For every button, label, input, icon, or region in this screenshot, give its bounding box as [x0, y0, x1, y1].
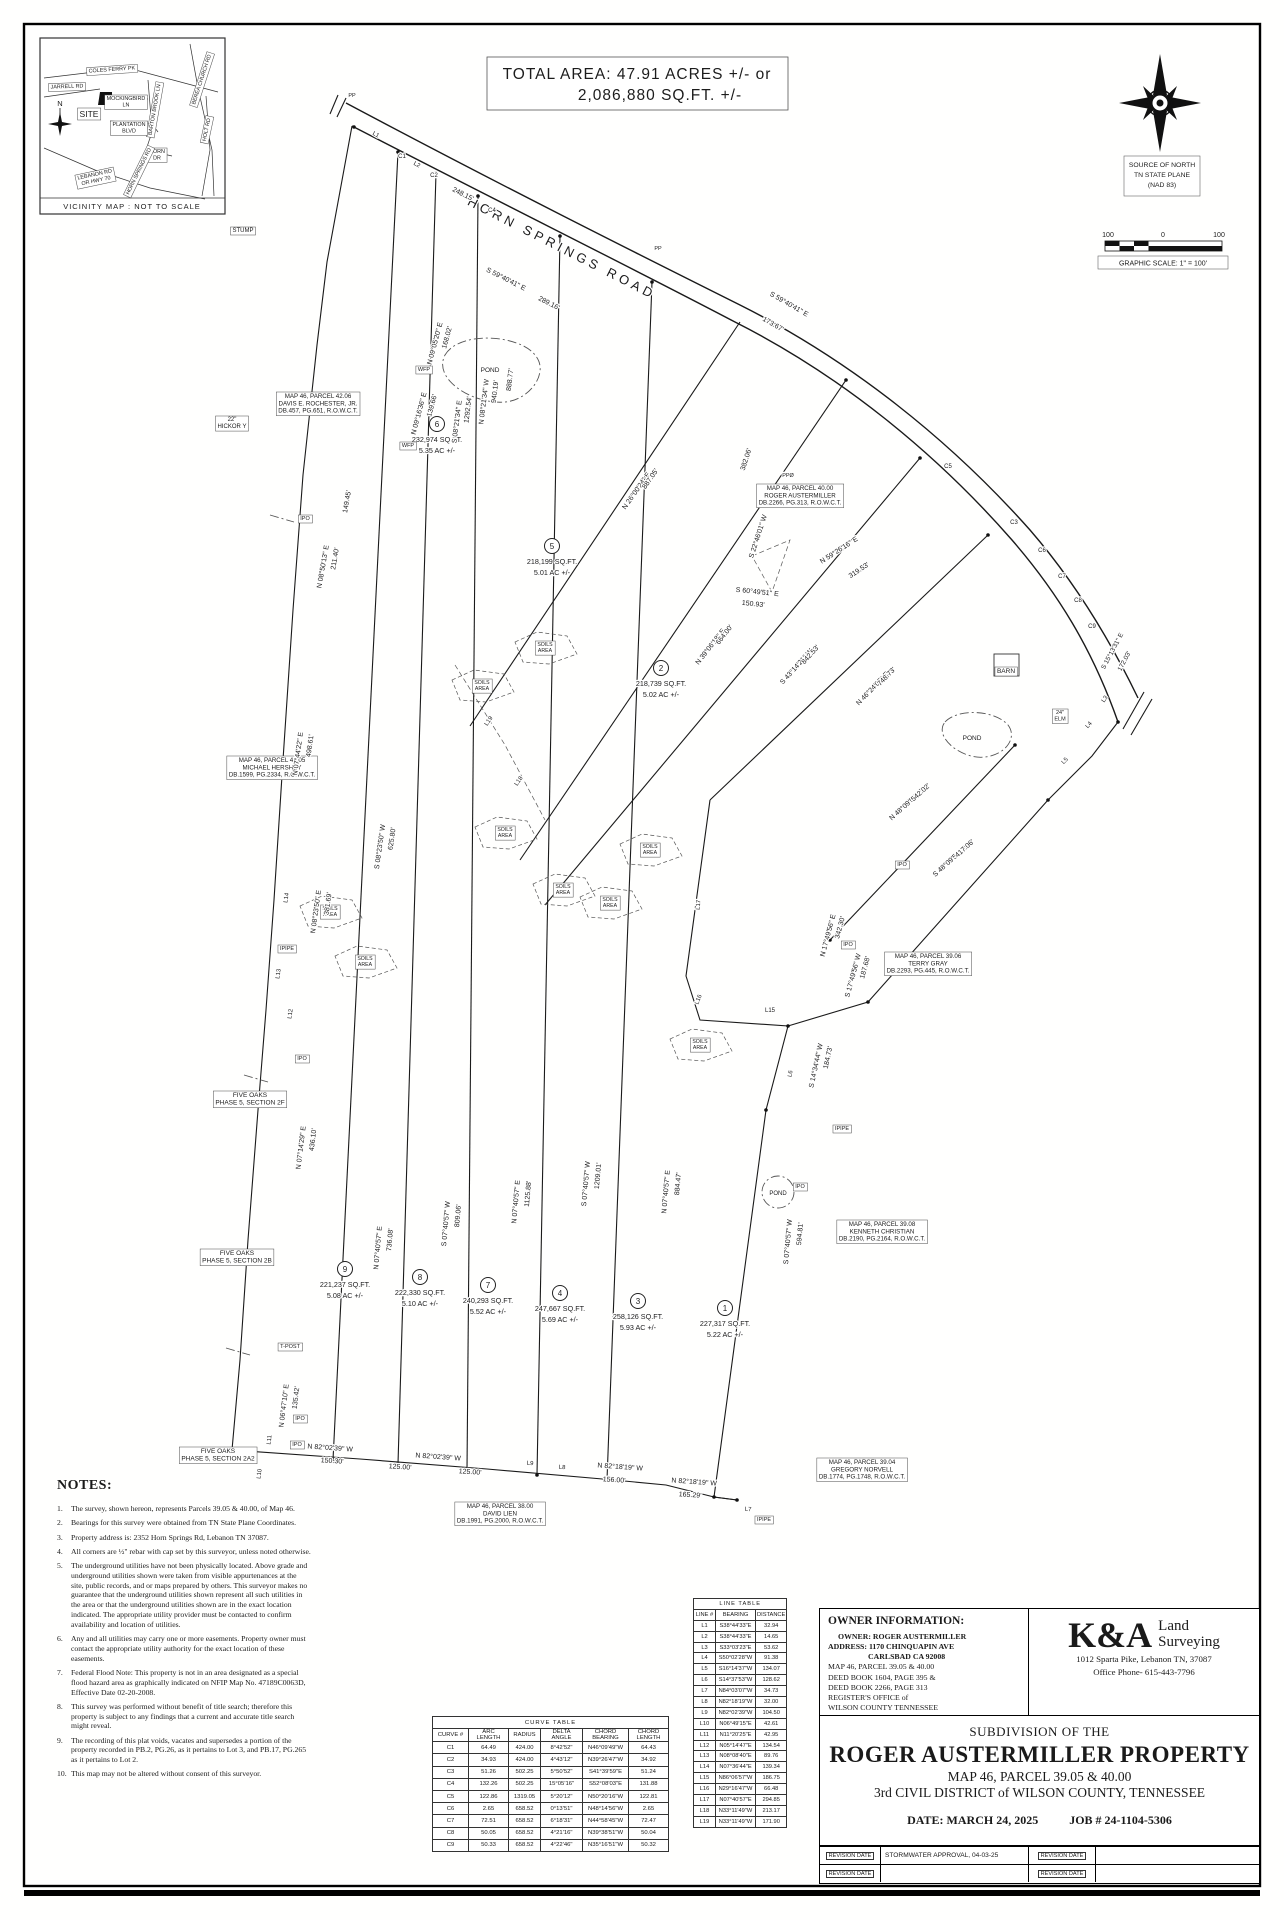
ponds — [443, 338, 1012, 1208]
owner-line: OWNER: ROGER AUSTERMILLER — [838, 1632, 1020, 1642]
plat-label: S 59°40'41" E — [485, 266, 527, 293]
lot-acreage: 5.02 AC +/- — [643, 690, 680, 699]
vicinity-map: COLES FERRY PKJARRELL RDBEREA CHURCH RDM… — [40, 38, 225, 214]
plat-label: L14 — [283, 892, 290, 903]
plat-label: N 06°47'10" E — [277, 1383, 290, 1428]
note-item: 8.This survey was performed without bene… — [57, 1702, 311, 1731]
plat-label: C1 — [398, 154, 406, 160]
plat-label: MAP 46, PARCEL 39.04GREGORY NORVELLDB.17… — [819, 1459, 906, 1481]
plat-label: IPIPE — [757, 1517, 771, 1523]
owner-heading: OWNER INFORMATION: — [828, 1615, 1020, 1627]
plat-label: N 09°16'36" E — [410, 391, 429, 435]
table-row: C4132.26502.2515°05'16"S52°08'03"E131.88 — [433, 1778, 669, 1790]
lot-number: 3 — [636, 1297, 641, 1306]
table-header: CHORD LENGTH — [629, 1729, 669, 1742]
lot-8: 8222,330 SQ.FT.5.10 AC +/- — [395, 1270, 445, 1309]
firm-word2: Surveying — [1158, 1635, 1220, 1651]
plat-label: C8 — [1074, 598, 1082, 604]
lot-number: 5 — [550, 542, 555, 551]
plat-label: 1292.54' — [463, 396, 473, 423]
scale-zero: 0 — [1161, 232, 1165, 239]
revision-rows: REVISION DATESTORMWATER APPROVAL, 04-03-… — [820, 1846, 1259, 1882]
note-item: 9.The recording of this plat voids, vaca… — [57, 1736, 311, 1765]
table-row: L8N82°18'19"W32.00 — [694, 1697, 787, 1708]
plat-subtitle: SUBDIVISION OF THE — [820, 1724, 1259, 1740]
plat-label: T-POST — [280, 1344, 301, 1350]
lot-acreage: 5.08 AC +/- — [327, 1291, 364, 1300]
plat-label: 150.93' — [741, 600, 764, 609]
plat-label: L8 — [559, 1465, 567, 1471]
table-row: L12N05°14'47"E134.54 — [694, 1740, 787, 1751]
table-row: L19N33°11'49"W171.90 — [694, 1816, 787, 1827]
plat-label: 940.19' — [491, 380, 501, 403]
lot-1: 1227,317 SQ.FT.5.22 AC +/- — [700, 1301, 750, 1340]
lot-2: 2218,739 SQ.FT.5.02 AC +/- — [636, 661, 686, 700]
lot-sqft: 218,739 SQ.FT. — [636, 679, 686, 688]
plat-label: L1 — [371, 131, 380, 140]
table-row: L13N08°08'40"E89.76 — [694, 1751, 787, 1762]
plat-label: C6 — [1038, 548, 1046, 554]
plat-label: PP — [348, 93, 356, 99]
title-block: OWNER INFORMATION: OWNER: ROGER AUSTERMI… — [819, 1608, 1260, 1884]
revision-date-label-cell: REVISION DATE — [1029, 1864, 1096, 1882]
lot-number: 9 — [343, 1265, 348, 1274]
plat-label: N 82°18'19" W — [597, 1461, 643, 1472]
revision-value-cell — [881, 1864, 1029, 1882]
plat-label: 319.53' — [848, 562, 871, 580]
table-header: LINE # — [694, 1609, 716, 1620]
notes-heading: NOTES: — [57, 1478, 311, 1494]
note-item: 10.This map may not be altered without c… — [57, 1769, 311, 1779]
plat-label: IPO — [292, 1442, 302, 1448]
plat-date: DATE: MARCH 24, 2025 — [907, 1813, 1038, 1827]
plat-label: 884.47' — [674, 1172, 683, 1195]
lot-number: 1 — [723, 1304, 728, 1313]
owner-information: OWNER INFORMATION: OWNER: ROGER AUSTERMI… — [820, 1609, 1029, 1716]
plat-label: N 07°40'57" E — [660, 1169, 672, 1213]
plat-label: 211.40' — [330, 547, 341, 570]
table-header: DISTANCE — [756, 1609, 787, 1620]
table-row: C234.93424.004°43'12"N39°26'47"W34.92 — [433, 1754, 669, 1766]
table-row: L6S14°37'53"W128.62 — [694, 1675, 787, 1686]
plat-label: 125.00' — [459, 1468, 482, 1477]
plat-label: L9 — [527, 1461, 535, 1467]
plat-label: 1209.01' — [594, 1162, 603, 1189]
plat-label: POND — [481, 367, 500, 374]
vicinity-caption: VICINITY MAP : NOT TO SCALE — [63, 202, 201, 211]
owner-line: MAP 46, PARCEL 39.05 & 40.00 — [828, 1662, 1020, 1672]
plat-label: S 08°23'50" W — [373, 823, 387, 869]
lot-number: 8 — [418, 1273, 423, 1282]
lot-sqft: 247,667 SQ.FT. — [535, 1304, 585, 1313]
lot-7: 7240,293 SQ.FT.5.52 AC +/- — [463, 1278, 513, 1317]
north-line2: TN STATE PLANE — [1134, 172, 1190, 179]
surveyor-firm: K&A Land Surveying 1012 Sparta Pike, Leb… — [1029, 1609, 1259, 1716]
revision-date-label-cell: REVISION DATE — [820, 1864, 881, 1882]
plat-label: N 59°26'16" E — [818, 535, 859, 566]
plat-label: N 08°50'13" E — [315, 544, 331, 589]
revision-value-cell — [1096, 1864, 1259, 1882]
owner-line: ADDRESS: 1170 CHINQUAPIN AVE — [828, 1642, 1020, 1652]
lot-number: 7 — [486, 1281, 491, 1290]
plat-label: L5 — [1061, 756, 1070, 765]
plat-label: IPO — [300, 516, 310, 522]
plat-label: 156.00' — [603, 1476, 626, 1485]
total-area-line2: 2,086,880 SQ.FT. +/- — [578, 87, 742, 104]
firm-initials: K&A — [1068, 1619, 1152, 1651]
lot-sqft: 221,237 SQ.FT. — [320, 1280, 370, 1289]
plat-label: POND — [769, 1191, 787, 1197]
table-row: L10N06°49'15"E42.61 — [694, 1718, 787, 1729]
plat-label: C2 — [430, 173, 438, 179]
plat-district: 3rd CIVIL DISTRICT of WILSON COUNTY, TEN… — [820, 1785, 1259, 1801]
plat-label: IPO — [295, 1416, 305, 1422]
north-line1: SOURCE OF NORTH — [1129, 162, 1195, 169]
plat-map-parcel: MAP 46, PARCEL 39.05 & 40.00 — [820, 1769, 1259, 1785]
plat-label: S 59°40'41" E — [768, 290, 810, 319]
table-row: L11N11°20'25"E42.95 — [694, 1729, 787, 1740]
plat-label: N 82°18'19" W — [671, 1476, 717, 1487]
plat-label: IPIPE — [280, 946, 294, 952]
plat-label: N 82°02'39" W — [415, 1451, 461, 1462]
lot-sqft: 258,126 SQ.FT. — [613, 1312, 663, 1321]
soils-area-label: SOILSAREA — [474, 680, 490, 692]
vicinity-label: N — [57, 99, 62, 108]
plat-label: 149.45' — [342, 490, 353, 514]
plat-label: S 60°49'51" E — [735, 586, 779, 599]
table-row: L16N29°16'47"W66.48 — [694, 1784, 787, 1795]
lot-3: 3258,126 SQ.FT.5.93 AC +/- — [613, 1294, 663, 1333]
plat-label: 289.16' — [537, 295, 560, 312]
plat-label: L11 — [266, 1434, 273, 1445]
table-header: DELTA ANGLE — [541, 1729, 583, 1742]
north-line3: (NAD 83) — [1148, 182, 1176, 189]
scale-caption: GRAPHIC SCALE: 1" = 100' — [1119, 261, 1207, 268]
north-source-note: SOURCE OF NORTH TN STATE PLANE (NAD 83) — [1124, 156, 1200, 196]
table-row: L14N07°36'44"E139.34 — [694, 1762, 787, 1773]
plat-label: 139.66' — [426, 394, 439, 418]
plat-label: 135.42' — [292, 1386, 302, 1409]
plat-title: SUBDIVISION OF THE ROGER AUSTERMILLER PR… — [820, 1716, 1259, 1846]
plat-label: 184.73' — [823, 1046, 835, 1070]
revision-date-label-cell: REVISION DATE — [820, 1846, 881, 1864]
table-header: CHORD BEARING — [583, 1729, 629, 1742]
soils-area-label: SOILSAREA — [555, 884, 571, 896]
plat-label: IPO — [897, 862, 907, 868]
plat-label: N 07°40'57" E — [510, 1179, 522, 1223]
soils-area-label: SOILSAREA — [642, 844, 658, 856]
plat-label: C4 — [488, 208, 496, 214]
plat-label: S 07°40'57" W — [440, 1201, 452, 1247]
lot-5: 5218,199 SQ.FT.5.01 AC +/- — [527, 539, 577, 578]
graphic-scale: 100 0 100 GRAPHIC SCALE: 1" = 100' — [1098, 232, 1228, 269]
plat-label: N 07°14'29" E — [294, 1125, 307, 1170]
soils-area-label: SOILSAREA — [602, 897, 618, 909]
scale-right: 100 — [1213, 232, 1225, 239]
plat-label: 1125.88' — [524, 1181, 533, 1208]
plat-label: 542.02' — [910, 783, 932, 803]
lot-acreage: 5.69 AC +/- — [542, 1315, 579, 1324]
vicinity-label: SITE — [80, 109, 99, 119]
plat-label: C3 — [1010, 520, 1018, 526]
plat-label: 809.06' — [454, 1204, 463, 1227]
owner-line: CARLSBAD CA 92008 — [868, 1652, 1020, 1662]
plat-label: 382.06' — [740, 448, 754, 472]
soils-area-label: SOILSAREA — [692, 1039, 708, 1051]
table-row: C5122.861319.055°20'12"N50°20'16"W122.81 — [433, 1790, 669, 1802]
plat-label: IPIPE — [835, 1126, 849, 1132]
curve-table: CURVE TABLECURVE #ARC LENGTHRADIUSDELTA … — [432, 1716, 669, 1852]
table-row: L4S50°02'28"W91.38 — [694, 1653, 787, 1664]
plat-label: IPO — [795, 1184, 805, 1190]
plat-label: 150.30' — [321, 1457, 344, 1466]
lot-acreage: 5.52 AC +/- — [470, 1307, 507, 1316]
plat-label: L13 — [275, 968, 282, 979]
vicinity-label: JARRELL RD — [50, 83, 83, 90]
firm-address: 1012 Sparta Pike, Lebanon TN, 37087 — [1029, 1654, 1259, 1664]
note-item: 2.Bearings for this survey were obtained… — [57, 1518, 311, 1528]
note-item: 4.All corners are ½" rebar with cap set … — [57, 1547, 311, 1557]
plat-label: C7 — [1058, 574, 1066, 580]
firm-word1: Land — [1158, 1619, 1220, 1635]
plat-label: L19 — [484, 715, 495, 727]
lot-sqft: 240,293 SQ.FT. — [463, 1296, 513, 1305]
plat-label: 165.29' — [679, 1491, 702, 1500]
soils-area-label: SOILSAREA — [537, 642, 553, 654]
lot-acreage: 5.35 AC +/- — [419, 446, 456, 455]
note-item: 3.Property address is: 2352 Horn Springs… — [57, 1533, 311, 1543]
table-row: C62.65658.520°13'51"N48°14'56"W2.65 — [433, 1803, 669, 1815]
owner-line: DEED BOOK 2266, PAGE 313 — [828, 1683, 1020, 1693]
table-row: L1S38°44'33"E32.94 — [694, 1620, 787, 1631]
lot-acreage: 5.10 AC +/- — [402, 1299, 439, 1308]
table-row: C351.26502.255°50'52"S41°39'59"E51.24 — [433, 1766, 669, 1778]
note-item: 7.Federal Flood Note: This property is n… — [57, 1668, 311, 1697]
firm-phone: Office Phone- 615-443-7796 — [1029, 1667, 1259, 1677]
revision-value-cell: STORMWATER APPROVAL, 04-03-25 — [881, 1846, 1029, 1864]
owner-line: REGISTER'S OFFICE of — [828, 1693, 1020, 1703]
plat-label: L16 — [695, 993, 704, 1005]
plat-label: PP — [654, 246, 662, 252]
plat-label: S 07°40'57" W — [580, 1161, 592, 1207]
note-item: 1.The survey, shown hereon, represents P… — [57, 1504, 311, 1514]
plat-labels: HORN SPRINGS ROADS 59°40'41" E289.16'S 5… — [179, 93, 1132, 1526]
plat-label: L12 — [287, 1008, 294, 1019]
plat-label: 888.77' — [506, 368, 516, 391]
plat-label: MAP 46, PARCEL 39.08KENNETH CHRISTIANDB.… — [839, 1221, 926, 1243]
lot-sqft: 222,330 SQ.FT. — [395, 1288, 445, 1297]
line-table: LINE TABLELINE #BEARINGDISTANCEL1S38°44'… — [693, 1598, 787, 1828]
plat-label: S 07°40'57" W — [782, 1219, 794, 1265]
plat-label: POND — [963, 735, 982, 742]
lot-sqft: 218,199 SQ.FT. — [527, 557, 577, 566]
plat-name: ROGER AUSTERMILLER PROPERTY — [820, 1742, 1259, 1768]
plat-label: 625.80' — [387, 827, 397, 851]
plat-label: PPØ — [782, 473, 794, 479]
plat-label: MAP 46, PARCEL 42.06DAVIS E. ROCHESTER, … — [278, 393, 358, 415]
table-row: L9N82°02'39"W104.50 — [694, 1707, 787, 1718]
plat-label: WFP — [402, 443, 415, 449]
plat-label: L4 — [1085, 720, 1094, 729]
scale-left: 100 — [1102, 232, 1114, 239]
table-row: L17N07°40'57"E294.85 — [694, 1795, 787, 1806]
table-row: C164.49424.008°42'52"N46°09'49"W64.43 — [433, 1742, 669, 1754]
plat-label: WFP — [418, 367, 431, 373]
total-area-line1: TOTAL AREA: 47.91 ACRES +/- or — [503, 66, 772, 83]
plat-label: 248.15' — [451, 186, 474, 203]
note-item: 5.The underground utilities have not bee… — [57, 1561, 311, 1629]
lot-markers: 1227,317 SQ.FT.5.22 AC +/-2218,739 SQ.FT… — [320, 417, 750, 1340]
plat-label: L18 — [514, 775, 525, 787]
lot-4: 4247,667 SQ.FT.5.69 AC +/- — [535, 1286, 585, 1325]
table-header: RADIUS — [509, 1729, 541, 1742]
notes-block: NOTES: 1.The survey, shown hereon, repre… — [57, 1478, 311, 1784]
table-row: L2S38°44'33"E14.65 — [694, 1631, 787, 1642]
plat-label: N 82°02'39" W — [307, 1442, 353, 1453]
table-header: ARC LENGTH — [469, 1729, 509, 1742]
plat-label: 168.02' — [441, 326, 454, 350]
plat-label: BARN — [997, 668, 1015, 675]
lot-acreage: 5.01 AC +/- — [534, 568, 571, 577]
plat-label: L6 — [787, 1069, 794, 1077]
table-row: C772.51658.526°18'31"N44°58'45"W72.47 — [433, 1815, 669, 1827]
plat-label: 498.61' — [305, 734, 315, 758]
plat-label: L17 — [696, 899, 703, 910]
total-area-header: TOTAL AREA: 47.91 ACRES +/- or 2,086,880… — [487, 57, 788, 110]
table-title: CURVE TABLE — [433, 1717, 669, 1729]
plat-label: L15 — [765, 1008, 776, 1014]
lot-sqft: 227,317 SQ.FT. — [700, 1319, 750, 1328]
plat-label: 173.67' — [761, 316, 784, 333]
plat-label: IPO — [297, 1056, 307, 1062]
revision-date-label-cell: REVISION DATE — [1029, 1846, 1096, 1864]
lot-number: 4 — [558, 1289, 563, 1298]
plat-label: C9 — [1088, 624, 1096, 630]
plat-label: S 14°34'44" W — [807, 1042, 824, 1088]
owner-line: WILSON COUNTY TENNESSEE — [828, 1703, 1020, 1713]
plat-label: STUMP — [233, 228, 254, 234]
soils-area-label: SOILSAREA — [357, 956, 373, 968]
plat-label: 125.00' — [389, 1463, 412, 1472]
lot-9: 9221,237 SQ.FT.5.08 AC +/- — [320, 1262, 370, 1301]
table-header: BEARING — [716, 1609, 756, 1620]
table-row: L3S33°03'23"E53.62 — [694, 1642, 787, 1653]
plat-label: 736.08' — [386, 1228, 395, 1251]
plat-label: 594.81' — [796, 1222, 805, 1245]
table-title: LINE TABLE — [694, 1599, 787, 1610]
table-row: C950.33658.524°22'46"N35°16'51"W50.32 — [433, 1839, 669, 1851]
plat-label: N 07°40'57" E — [372, 1225, 384, 1269]
table-row: L7N84°03'07"W34.73 — [694, 1686, 787, 1697]
plat-label: MAP 46, PARCEL 40.00ROGER AUSTERMILLERDB… — [759, 485, 842, 507]
plat-label: 417.06' — [954, 839, 976, 859]
lot-number: 6 — [435, 420, 440, 429]
table-row: L18N33°11'49"W213.17 — [694, 1805, 787, 1816]
soils-area-label: SOILSAREA — [497, 827, 513, 839]
plat-label: L7 — [745, 1507, 753, 1513]
plat-label: C5 — [944, 464, 952, 470]
firm-logo: K&A Land Surveying — [1029, 1619, 1259, 1651]
lot-number: 2 — [659, 664, 664, 673]
lot-acreage: 5.93 AC +/- — [620, 1323, 657, 1332]
note-item: 6.Any and all utilities may carry one or… — [57, 1634, 311, 1663]
lot-acreage: 5.22 AC +/- — [707, 1330, 744, 1339]
revision-value-cell — [1096, 1846, 1259, 1864]
north-arrow: SOURCE OF NORTH TN STATE PLANE (NAD 83) — [1119, 54, 1201, 196]
plat-job-number: JOB # 24-1104-5306 — [1069, 1813, 1172, 1827]
table-row: L15N86°06'57"W186.75 — [694, 1773, 787, 1784]
table-row: L5S16°14'37"W134.07 — [694, 1664, 787, 1675]
plat-sheet: COLES FERRY PKJARRELL RDBEREA CHURCH RDM… — [0, 0, 1284, 1920]
table-header: CURVE # — [433, 1729, 469, 1742]
table-row: C850.05658.524°21'16"N39°38'51"W50.04 — [433, 1827, 669, 1839]
plat-label: IPO — [843, 942, 853, 948]
owner-line: DEED BOOK 1604, PAGE 395 & — [828, 1673, 1020, 1683]
plat-label: 436.10' — [309, 1128, 319, 1151]
plat-label: L2 — [412, 161, 421, 170]
